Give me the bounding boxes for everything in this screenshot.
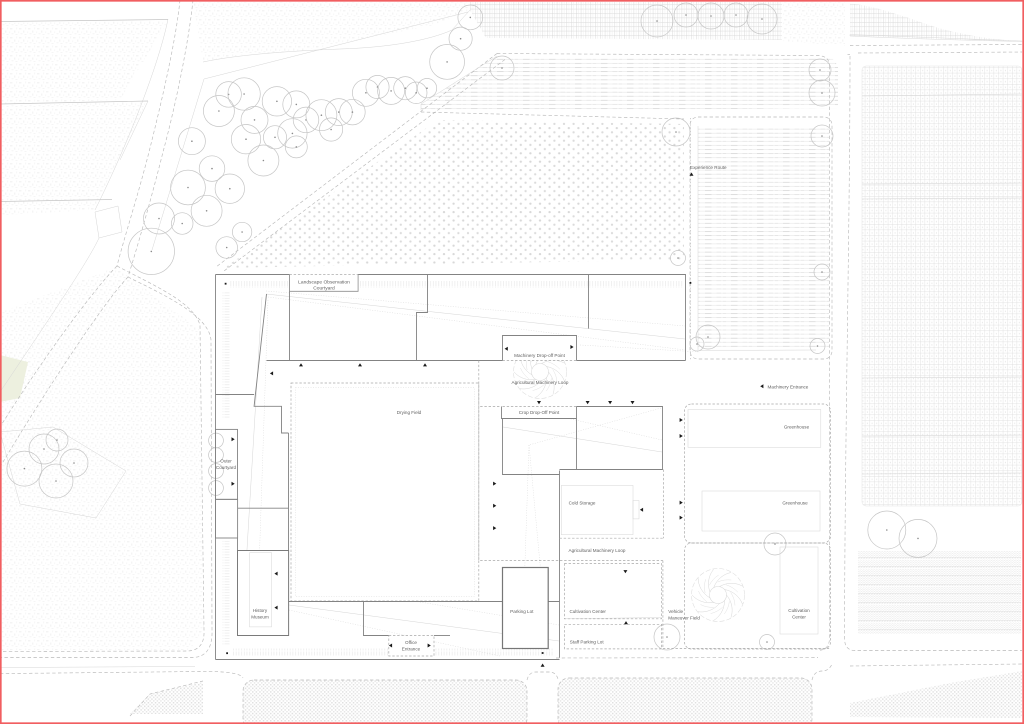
svg-text:Drying Field: Drying Field <box>397 410 422 415</box>
svg-text:Courtyard: Courtyard <box>313 285 335 291</box>
svg-text:History: History <box>253 608 268 613</box>
svg-text:Machinery Entrance: Machinery Entrance <box>768 384 809 389</box>
svg-text:Machinery Drop-off Point: Machinery Drop-off Point <box>514 353 565 358</box>
svg-text:Staff Parking Lot: Staff Parking Lot <box>570 640 605 645</box>
svg-text:Greenhouse: Greenhouse <box>784 425 810 430</box>
svg-text:Experience Route: Experience Route <box>690 165 727 170</box>
svg-text:Maneuver Field: Maneuver Field <box>668 616 700 621</box>
svg-text:Vehicle: Vehicle <box>668 609 683 614</box>
svg-text:Entrance: Entrance <box>402 647 421 652</box>
svg-text:Landscape Observation: Landscape Observation <box>298 279 350 285</box>
svg-text:Cold Storage: Cold Storage <box>569 500 596 505</box>
svg-text:Cultivation Center: Cultivation Center <box>569 609 606 614</box>
svg-text:Center: Center <box>792 615 806 620</box>
svg-text:Museum: Museum <box>251 615 269 620</box>
svg-text:Cultivation: Cultivation <box>788 608 810 613</box>
svg-text:Courtyard: Courtyard <box>216 465 237 470</box>
svg-text:Agricultural Machinery Loop: Agricultural Machinery Loop <box>512 380 569 385</box>
svg-text:Agricultural Machinery Loop: Agricultural Machinery Loop <box>569 548 626 553</box>
svg-text:Outer: Outer <box>220 459 232 464</box>
svg-text:Crop Drop-Off Point: Crop Drop-Off Point <box>519 410 560 415</box>
svg-text:Office: Office <box>405 640 417 645</box>
svg-text:Greenhouse: Greenhouse <box>782 501 808 506</box>
svg-text:Parking Lot: Parking Lot <box>510 609 534 614</box>
